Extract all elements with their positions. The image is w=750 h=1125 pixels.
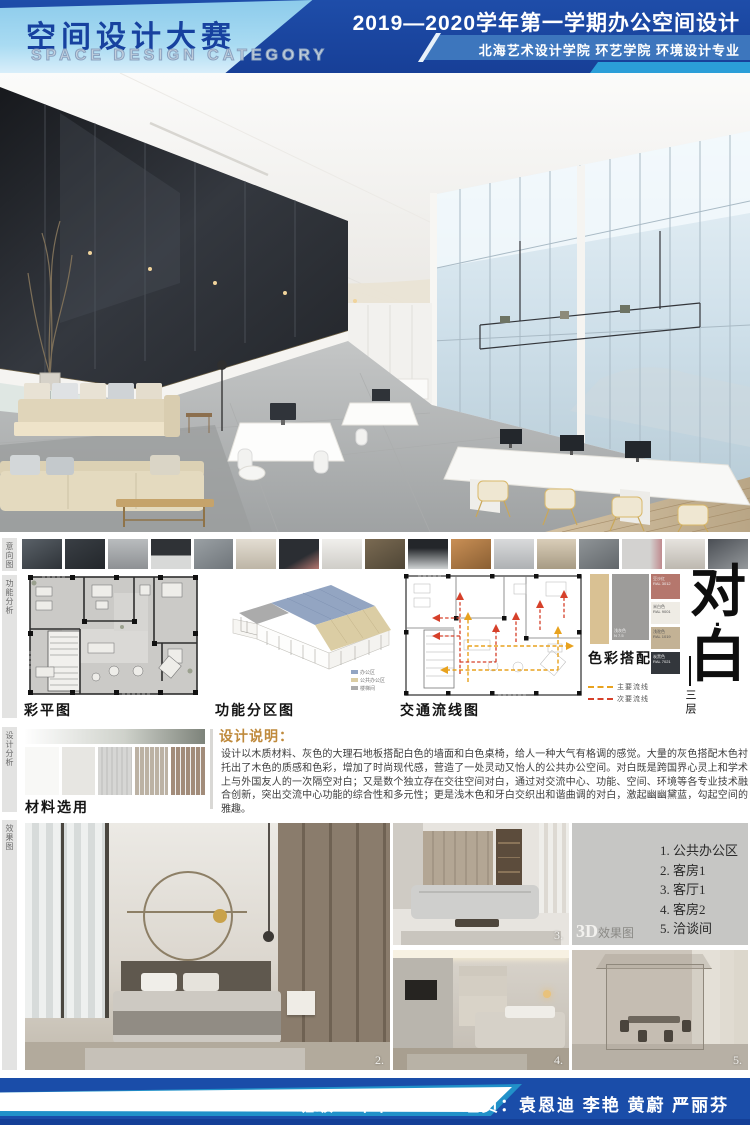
concept-title: 对 · 白 三层 bbox=[660, 566, 750, 726]
header-teal-stripe bbox=[590, 62, 750, 73]
wardrobe bbox=[278, 823, 390, 1070]
sofa bbox=[411, 885, 539, 919]
render-number: 2. bbox=[375, 1053, 384, 1068]
reference-thumbnail bbox=[22, 539, 62, 569]
color-swatch-gray: 浅灰色N 7.5 bbox=[612, 574, 649, 640]
warm-lamp bbox=[543, 990, 551, 998]
cove-light bbox=[393, 950, 569, 958]
reference-thumbnail bbox=[622, 539, 662, 569]
design-competition-poster: 空间设计大赛 SPACE DESIGN CATEGORY 2019—2020学年… bbox=[0, 0, 750, 1125]
header-banner: 空间设计大赛 SPACE DESIGN CATEGORY 2019—2020学年… bbox=[0, 0, 750, 73]
zoning-legend: 办公区公共办公区楼梯间 bbox=[351, 668, 385, 692]
render-index-item: 2. 客房1 bbox=[660, 861, 738, 881]
nightstand bbox=[287, 991, 315, 1015]
hero-render bbox=[0, 73, 750, 532]
reference-thumbnail bbox=[322, 539, 362, 569]
reference-thumbnail bbox=[451, 539, 491, 569]
material-swatch bbox=[171, 747, 205, 795]
color-floor-plan bbox=[22, 571, 205, 701]
render-number: 3. bbox=[554, 928, 563, 943]
render-number: 4. bbox=[554, 1053, 563, 1068]
side-label-analysis: 设计分析 bbox=[2, 727, 17, 812]
description-accent-bar bbox=[210, 729, 213, 809]
material-swatch bbox=[62, 747, 96, 795]
tv bbox=[405, 980, 437, 1000]
reference-thumbnail bbox=[494, 539, 534, 569]
reference-thumbnail bbox=[537, 539, 577, 569]
render-index-panel: 1. 公共办公区2. 客房13. 客厅14. 客房25. 洽谈间 3D效果图 bbox=[572, 823, 748, 945]
reference-thumbnail bbox=[365, 539, 405, 569]
render-index-item: 5. 洽谈间 bbox=[660, 919, 738, 939]
footer-bar: 班级：环本1707 组员：袁恩迪 李艳 黄蔚 严丽芬 bbox=[0, 1078, 750, 1125]
side-label-intent: 意向图 bbox=[2, 538, 17, 571]
zoning-diagram: 办公区公共办公区楼梯间 bbox=[213, 573, 395, 700]
render-bedroom-2: 4. bbox=[393, 950, 569, 1070]
reference-thumbnail bbox=[65, 539, 105, 569]
render-index-item: 1. 公共办公区 bbox=[660, 841, 738, 861]
glass-meeting-box bbox=[606, 964, 704, 1050]
color-plan-label: 彩平图 bbox=[24, 700, 72, 720]
circulation-legend-row: 次要流线 bbox=[588, 693, 649, 705]
color-swatch-beige bbox=[590, 574, 609, 644]
render-index-item: 4. 客房2 bbox=[660, 900, 738, 920]
zoning-legend-row: 公共办公区 bbox=[351, 676, 385, 684]
description-heading: 设计说明： bbox=[219, 726, 294, 746]
reference-thumbnail bbox=[579, 539, 619, 569]
material-swatches bbox=[25, 747, 205, 795]
concept-floor-tag: 三层 bbox=[682, 656, 698, 717]
render-index-list: 1. 公共办公区2. 客房13. 客厅14. 客房25. 洽谈间 bbox=[660, 841, 738, 939]
school-name: 北海艺术设计学院 环艺学院 环境设计专业 bbox=[479, 40, 740, 59]
render-meeting-room: 5. bbox=[572, 950, 748, 1070]
coffee-table bbox=[455, 919, 499, 927]
side-label-function: 功能分析 bbox=[2, 575, 17, 718]
render-bedroom-1: 2. bbox=[25, 823, 390, 1070]
team-members: 组员：袁恩迪 李艳 黄蔚 严丽芬 bbox=[462, 1091, 729, 1116]
zoning-label: 功能分区图 bbox=[215, 700, 295, 720]
circulation-legend: 主要流线次要流线 bbox=[588, 681, 649, 705]
class-info: 班级：环本1707 bbox=[297, 1091, 438, 1116]
zoning-legend-row: 楼梯间 bbox=[351, 684, 385, 692]
reference-thumbnail-strip bbox=[22, 539, 748, 569]
material-gradient-bar bbox=[25, 729, 205, 744]
zoning-legend-row: 办公区 bbox=[351, 668, 385, 676]
materials-label: 材料选用 bbox=[25, 797, 89, 817]
concept-divider-line bbox=[689, 656, 691, 686]
side-label-renders: 效果图 bbox=[2, 820, 17, 1070]
color-scheme-label: 色彩搭配 bbox=[588, 648, 652, 668]
render-section-tag: 3D效果图 bbox=[576, 921, 634, 942]
course-title: 2019—2020学年第一学期办公空间设计 bbox=[353, 7, 740, 37]
reference-thumbnail bbox=[279, 539, 319, 569]
reference-thumbnail bbox=[194, 539, 234, 569]
material-swatch bbox=[25, 747, 59, 795]
render-number: 5. bbox=[733, 1053, 742, 1068]
circulation-label: 交通流线图 bbox=[400, 700, 480, 720]
reference-thumbnail bbox=[108, 539, 148, 569]
reference-thumbnail bbox=[408, 539, 448, 569]
reference-thumbnail bbox=[236, 539, 276, 569]
circulation-legend-row: 主要流线 bbox=[588, 681, 649, 693]
material-swatch bbox=[135, 747, 169, 795]
circulation-diagram bbox=[398, 570, 589, 703]
meeting-table bbox=[628, 1016, 680, 1023]
pendant-light bbox=[268, 823, 270, 933]
material-swatch bbox=[98, 747, 132, 795]
render-index-item: 3. 客厅1 bbox=[660, 880, 738, 900]
reference-thumbnail bbox=[151, 539, 191, 569]
window-curtain bbox=[25, 823, 109, 1018]
description-body: 设计以木质材料、灰色的大理石地板搭配白色的墙面和白色桌椅，给人一种大气有格调的感… bbox=[221, 748, 748, 817]
competition-title-en: SPACE DESIGN CATEGORY bbox=[31, 47, 328, 65]
render-living-room: 3. bbox=[393, 823, 569, 945]
